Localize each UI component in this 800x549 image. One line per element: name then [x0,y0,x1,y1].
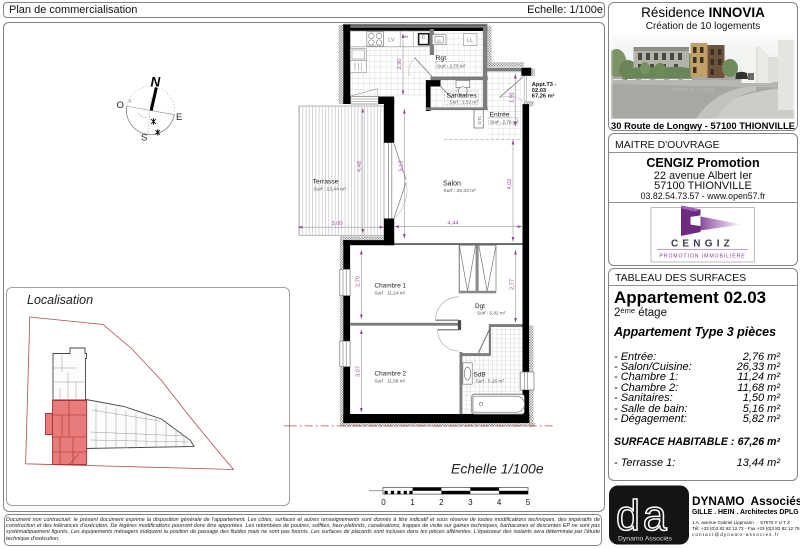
svg-text:Surf : 11,24 m²: Surf : 11,24 m² [375,291,406,296]
svg-text:Surf : 13,44 m²: Surf : 13,44 m² [314,187,347,193]
svg-text:5: 5 [526,498,531,507]
svg-text:Chambre 1: Chambre 1 [375,283,407,290]
svg-text:Surf.: 26,33 m²: Surf.: 26,33 m² [444,188,477,194]
svg-text:2,90: 2,90 [397,59,403,70]
svg-text:Dgt: Dgt [475,303,485,310]
svg-text:GTL: GTL [477,115,482,124]
svg-text:3,00: 3,00 [332,221,343,227]
svg-text:Surf : 1,52 m²: Surf : 1,52 m² [450,100,479,105]
svg-text:Rgt: Rgt [436,55,447,62]
svg-text:LV: LV [388,38,395,44]
svg-text:60: 60 [437,39,441,43]
svg-text:O: O [117,100,124,111]
svg-text:Surf : 11,68 m²: Surf : 11,68 m² [375,379,406,384]
svg-text:Surf : 5,82 m²: Surf : 5,82 m² [477,311,506,316]
svg-text:4,44: 4,44 [448,221,459,227]
svg-text:o: o [129,99,132,105]
svg-text:Surf : 2,76 m²: Surf : 2,76 m² [490,120,519,125]
svg-text:CENGIZ: CENGIZ [671,239,734,250]
svg-text:Surf : 2,75 m²: Surf : 2,75 m² [437,63,466,68]
svg-text:67,26 m²: 67,26 m² [532,93,555,100]
svg-text:Entrée: Entrée [490,112,510,119]
svg-text:Chambre 2: Chambre 2 [375,371,407,378]
svg-text:avenue de Longwy: avenue de Longwy [672,87,714,93]
svg-text:Echelle 1/100e: Echelle 1/100e [451,461,544,477]
svg-text:PROMOTION IMMOBILIÈRE: PROMOTION IMMOBILIÈRE [659,253,745,260]
svg-text:4,02: 4,02 [507,179,513,190]
svg-text:2,70: 2,70 [356,276,362,287]
svg-text:Salon: Salon [443,181,461,188]
svg-text:3,07: 3,07 [356,366,362,377]
svg-text:S: S [141,133,147,144]
svg-text:Terrasse: Terrasse [313,179,339,186]
svg-text:E: E [176,112,182,123]
svg-text:Surf : 5,16 m²: Surf : 5,16 m² [476,379,505,384]
svg-text:5,13: 5,13 [399,161,405,172]
svg-text:SdB: SdB [474,371,486,378]
svg-text:1,91: 1,91 [510,92,516,103]
svg-text:LL: LL [467,38,473,44]
svg-text:2: 2 [439,498,444,507]
svg-text:Sanitaires: Sanitaires [447,93,478,100]
svg-text:da: da [616,492,670,540]
svg-text:0: 0 [381,498,386,507]
svg-text:Localisation: Localisation [27,293,93,307]
svg-text:4: 4 [497,498,502,507]
svg-text:1: 1 [410,498,415,507]
svg-text:3: 3 [468,498,473,507]
svg-text:N: N [151,75,161,90]
svg-text:Dynamo Associés: Dynamo Associés [618,536,673,543]
svg-text:4,48: 4,48 [357,161,363,172]
svg-text:2,77: 2,77 [510,279,516,290]
